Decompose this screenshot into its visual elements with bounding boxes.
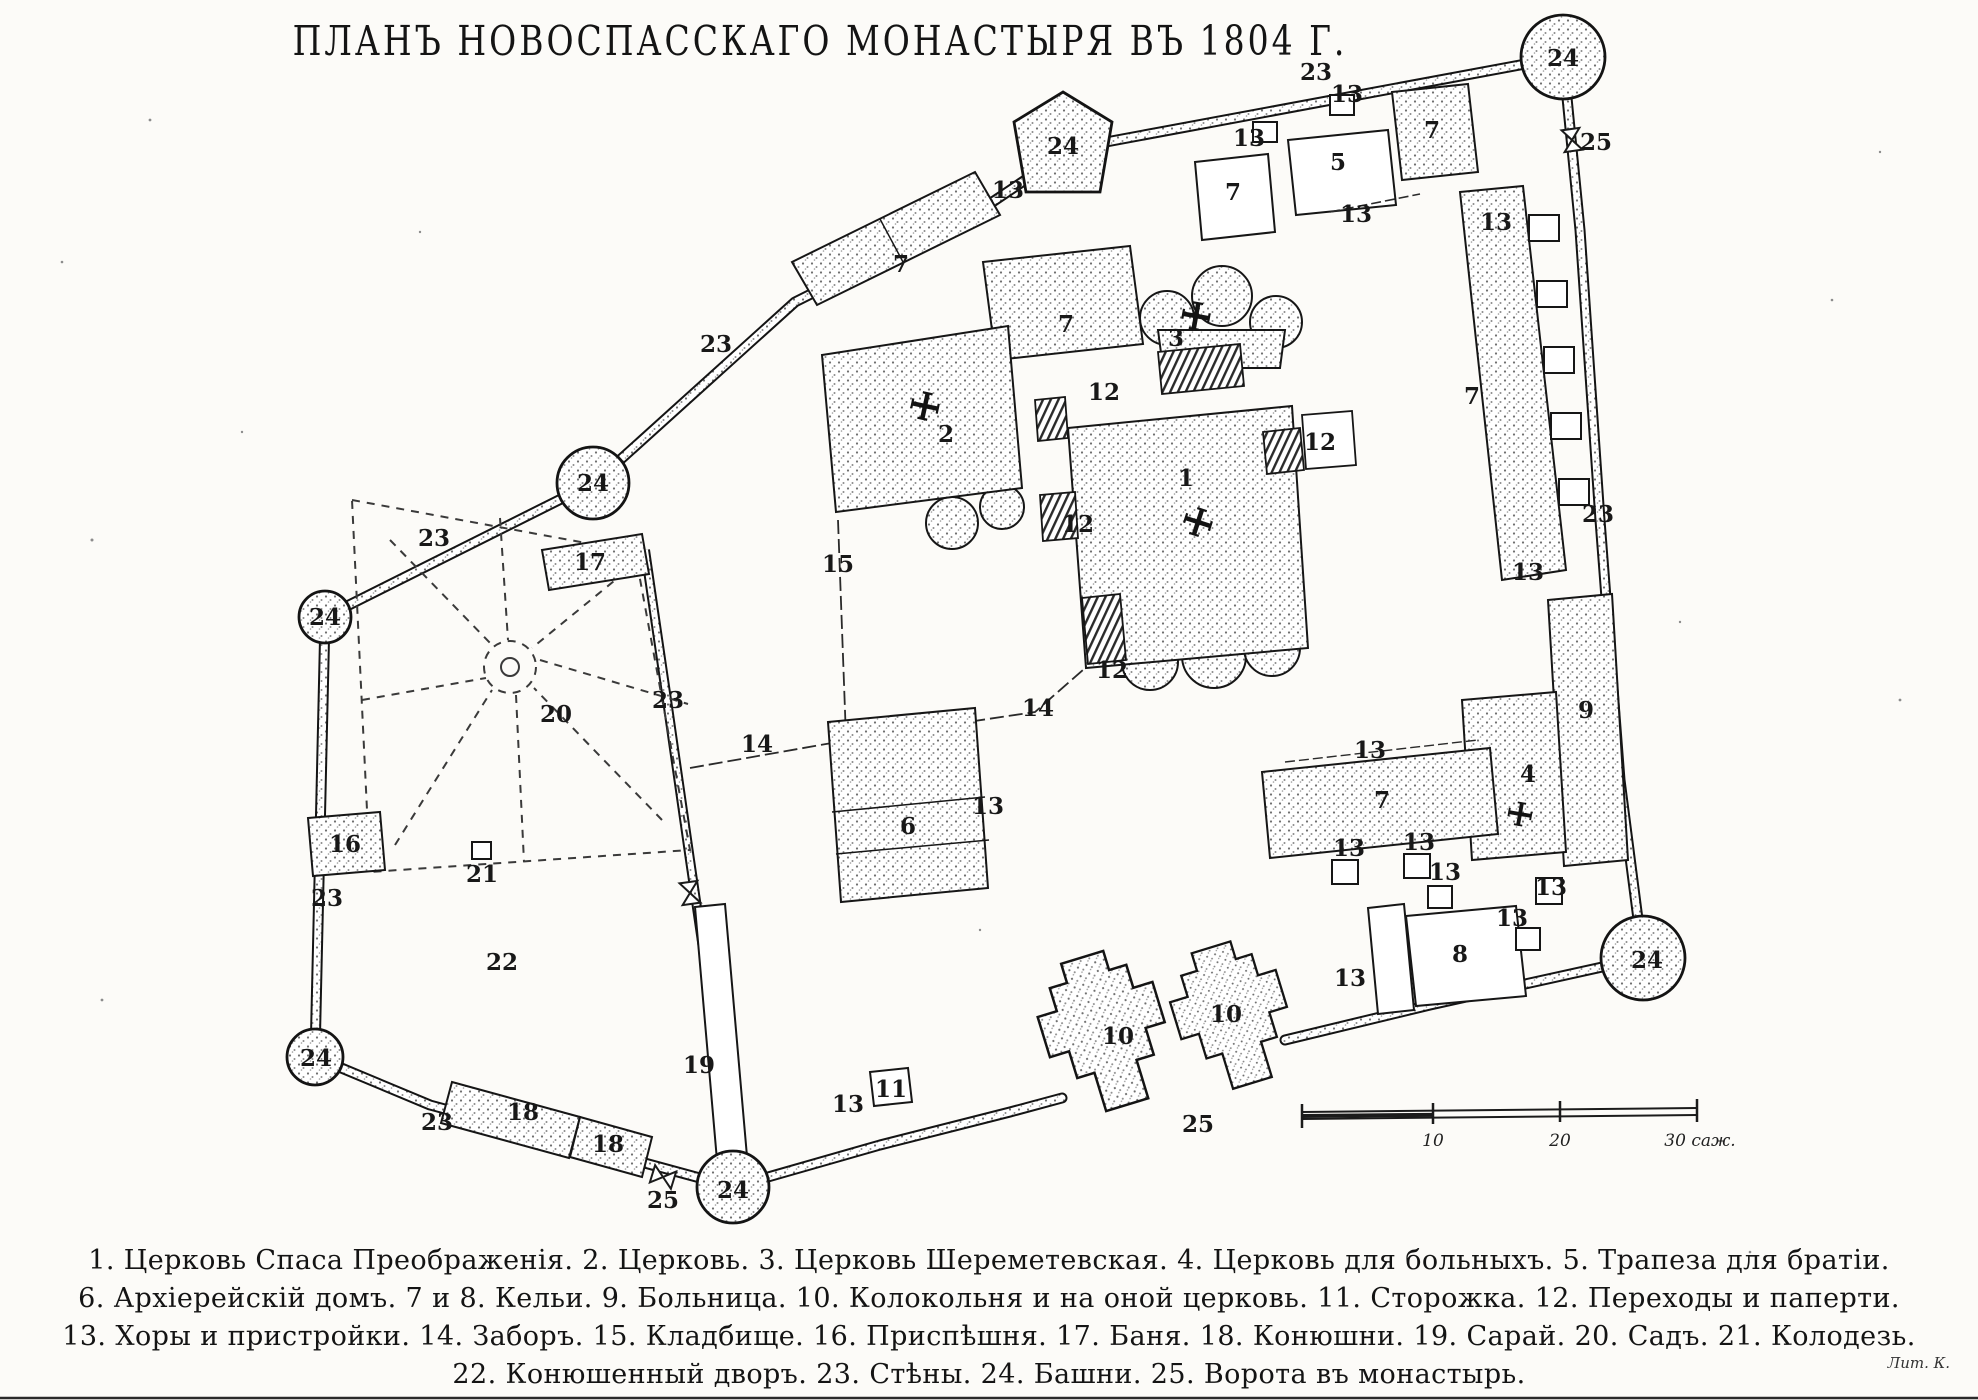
map-label-25: 25 [1580,129,1612,156]
map-label-25: 25 [1182,1111,1214,1138]
map-label-23: 23 [311,885,343,912]
annex-13 [1537,281,1567,307]
map-label-13: 13 [1340,201,1372,228]
map-label-2: 2 [938,421,954,448]
map-label-3: 3 [1168,325,1184,352]
map-label-13: 13 [1333,835,1365,862]
map-label-12: 12 [1062,511,1094,538]
well-21 [472,842,491,859]
map-label-13: 13 [1496,905,1528,932]
map-label-8: 8 [1452,941,1468,968]
scale-tick-label: 30 саж. [1664,1131,1735,1151]
map-label-24: 24 [1547,45,1579,72]
map-label-24: 24 [1631,947,1663,974]
map-label-13: 13 [1233,125,1265,152]
map-label-13: 13 [1480,209,1512,236]
map-label-25: 25 [647,1187,679,1214]
map-label-18: 18 [592,1131,624,1158]
map-label-12: 12 [1304,429,1336,456]
annex-13 [1332,860,1358,884]
garden-center-feature [501,658,519,676]
map-label-11: 11 [875,1076,907,1103]
map-label-23: 23 [700,331,732,358]
annex-13 [1544,347,1574,373]
map-label-23: 23 [652,687,684,714]
map-label-5: 5 [1330,149,1346,176]
legend: 1. Церковь Спаса Преображенія. 2. Церков… [0,1242,1978,1394]
map-label-4: 4 [1520,761,1536,788]
map-label-10: 10 [1102,1023,1134,1050]
legend-line-4: 22. Конюшенный дворъ. 23. Стѣны. 24. Баш… [0,1356,1978,1394]
map-label-13: 13 [1354,737,1386,764]
map-label-20: 20 [540,701,572,728]
map-label-7: 7 [1058,311,1074,338]
map-label-13: 13 [832,1091,864,1118]
outer-wall [315,57,1643,1187]
map-label-13: 13 [1429,859,1461,886]
map-label-7: 7 [1424,117,1440,144]
map-label-23: 23 [1300,59,1332,86]
map-label-10: 10 [1210,1001,1242,1028]
legend-line-1: 1. Церковь Спаса Преображенія. 2. Церков… [0,1242,1978,1280]
map-label-7: 7 [893,251,909,278]
map-label-12: 12 [1096,657,1128,684]
map-label-13: 13 [1403,829,1435,856]
map-label-14: 14 [1022,695,1054,722]
map-label-13: 13 [972,793,1004,820]
stair-12-east [1263,428,1304,474]
map-label-24: 24 [1047,133,1079,160]
map-label-13: 13 [1535,874,1567,901]
map-label-13: 13 [992,177,1024,204]
scale-bar-labels: 102030 саж. [1422,1131,1736,1151]
map-label-6: 6 [900,813,916,840]
map-label-19: 19 [683,1052,715,1079]
scale-bar [1302,1099,1697,1128]
map-label-7: 7 [1225,179,1241,206]
map-label-13: 13 [1512,559,1544,586]
map-label-13: 13 [1334,965,1366,992]
map-label-14: 14 [741,731,773,758]
scale-tick-label: 10 [1422,1131,1444,1151]
annex-13 [1529,215,1559,241]
annex-13 [1404,854,1430,878]
map-label-12: 12 [1088,379,1120,406]
map-label-18: 18 [507,1099,539,1126]
map-label-15: 15 [822,551,854,578]
building-19-shed [695,904,748,1172]
map-label-24: 24 [300,1045,332,1072]
map-label-13: 13 [1331,81,1363,108]
annex-13 [1428,886,1452,908]
map-label-24: 24 [717,1177,749,1204]
map-label-23: 23 [418,525,450,552]
map-label-9: 9 [1578,697,1594,724]
scan-noise [61,119,1902,1254]
map-label-23: 23 [1582,501,1614,528]
map-label-7: 7 [1374,787,1390,814]
map-label-24: 24 [577,470,609,497]
map-label-23: 23 [421,1109,453,1136]
map-label-21: 21 [466,861,498,888]
legend-line-2: 6. Архіерейскій домъ. 7 и 8. Кельи. 9. Б… [0,1280,1978,1318]
printer-mark: Лит. К. [1888,1354,1950,1372]
map-label-22: 22 [486,949,518,976]
stair-north-of-2 [1035,397,1068,441]
map-label-17: 17 [574,549,606,576]
stair-12-south [1082,594,1126,664]
scale-tick-label: 20 [1548,1131,1571,1151]
map-label-24: 24 [309,604,341,631]
map-label-16: 16 [329,831,361,858]
scanned-plan-page: ПЛАНЪ НОВОСПАССКАГО МОНАСТЫРЯ ВЪ 1804 Г. [0,0,1978,1400]
building-7-northwest [792,172,1000,305]
map-label-7: 7 [1464,383,1480,410]
legend-line-3: 13. Хоры и пристройки. 14. Заборъ. 15. К… [0,1318,1978,1356]
monastery-plan-map: 102030 саж. 2423252413723137135713137231… [0,0,1978,1400]
building-2-church [822,326,1024,549]
map-label-1: 1 [1178,465,1194,492]
annex-13 [1551,413,1581,439]
